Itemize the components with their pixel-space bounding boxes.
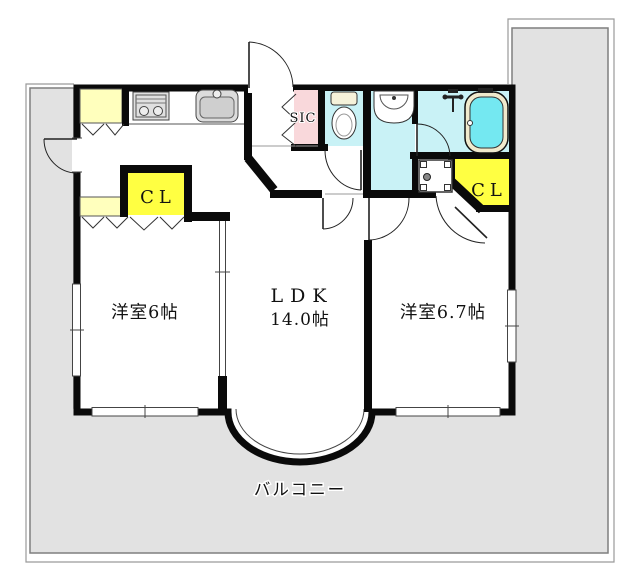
washbasin-icon xyxy=(374,91,414,123)
closet-right-label: CL xyxy=(471,180,507,201)
tub-faucet-icon xyxy=(478,88,493,93)
stove-icon xyxy=(133,92,169,120)
wall-closet-right-south xyxy=(476,205,512,212)
closet-left-label: CL xyxy=(140,187,176,208)
room-left-label: 洋室6帖 xyxy=(111,303,179,323)
bedroom-cabinet xyxy=(80,197,122,216)
wall-toilet-washroom xyxy=(363,86,371,190)
ldk-label: LDK xyxy=(270,285,333,307)
wall-toilet-south-stub xyxy=(318,144,328,151)
toilet-icon xyxy=(331,92,357,139)
wall-closet-left-west xyxy=(120,165,128,217)
wall-hall-south xyxy=(270,190,322,198)
wall-sic-toilet xyxy=(318,86,325,151)
bathtub-icon xyxy=(465,88,508,153)
wall-bedroom-left-north xyxy=(184,212,230,221)
entrance-door xyxy=(248,42,293,93)
ldk-size-label: 14.0帖 xyxy=(270,310,330,330)
floorplan-svg: 洋室6帖 LDK 14.0帖 洋室6.7帖 バルコニー CL CL SIC xyxy=(0,0,640,586)
washer-pan-icon xyxy=(419,160,452,192)
balcony-label: バルコニー xyxy=(254,480,346,499)
floorplan-image: 洋室6帖 LDK 14.0帖 洋室6.7帖 バルコニー CL CL SIC xyxy=(0,0,640,586)
kitchen-sink-icon xyxy=(196,90,238,122)
wall-entry-left xyxy=(244,86,252,160)
wall-bedroom-left-stub xyxy=(218,376,227,412)
room-right-label: 洋室6.7帖 xyxy=(400,303,486,323)
sic-label: SIC xyxy=(290,111,317,126)
wall-closet-left-north xyxy=(120,165,192,173)
kitchen-cabinet xyxy=(80,89,122,123)
wall-kitchen-cabinet xyxy=(122,86,129,126)
wall-ldk-bedroom-right xyxy=(364,240,372,412)
